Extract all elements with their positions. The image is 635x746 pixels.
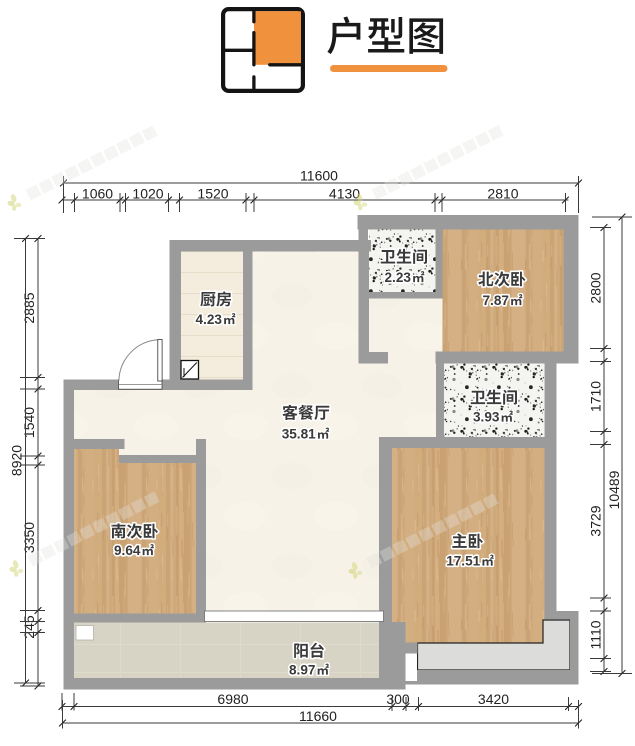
svg-text:3.93: 3.93 bbox=[473, 409, 500, 424]
svg-text:9.64: 9.64 bbox=[114, 543, 141, 558]
svg-text:11660: 11660 bbox=[299, 708, 337, 724]
svg-text:1060: 1060 bbox=[82, 185, 113, 201]
svg-text:6980: 6980 bbox=[217, 691, 248, 707]
svg-text:35.81: 35.81 bbox=[282, 426, 316, 441]
svg-text:1020: 1020 bbox=[132, 185, 163, 201]
svg-text:4.23: 4.23 bbox=[196, 312, 223, 327]
svg-text:8.97: 8.97 bbox=[289, 662, 315, 677]
svg-text:2885: 2885 bbox=[21, 292, 37, 323]
svg-text:1540: 1540 bbox=[21, 407, 37, 438]
svg-text:17.51: 17.51 bbox=[446, 553, 480, 568]
svg-text:3350: 3350 bbox=[21, 522, 37, 553]
svg-text:11600: 11600 bbox=[300, 168, 338, 184]
svg-text:245: 245 bbox=[21, 615, 37, 639]
svg-text:1710: 1710 bbox=[588, 381, 604, 412]
svg-text:2.23: 2.23 bbox=[385, 270, 412, 285]
svg-text:300: 300 bbox=[386, 691, 410, 707]
svg-text:8920: 8920 bbox=[9, 445, 25, 476]
svg-text:10489: 10489 bbox=[606, 470, 622, 509]
svg-text:3729: 3729 bbox=[588, 505, 604, 536]
svg-text:4130: 4130 bbox=[329, 185, 360, 201]
svg-text:3420: 3420 bbox=[478, 691, 509, 707]
svg-text:2810: 2810 bbox=[487, 185, 518, 201]
svg-text:7.87: 7.87 bbox=[483, 293, 509, 308]
svg-text:1520: 1520 bbox=[197, 185, 228, 201]
svg-text:1110: 1110 bbox=[588, 620, 604, 649]
svg-text:2800: 2800 bbox=[588, 272, 604, 303]
